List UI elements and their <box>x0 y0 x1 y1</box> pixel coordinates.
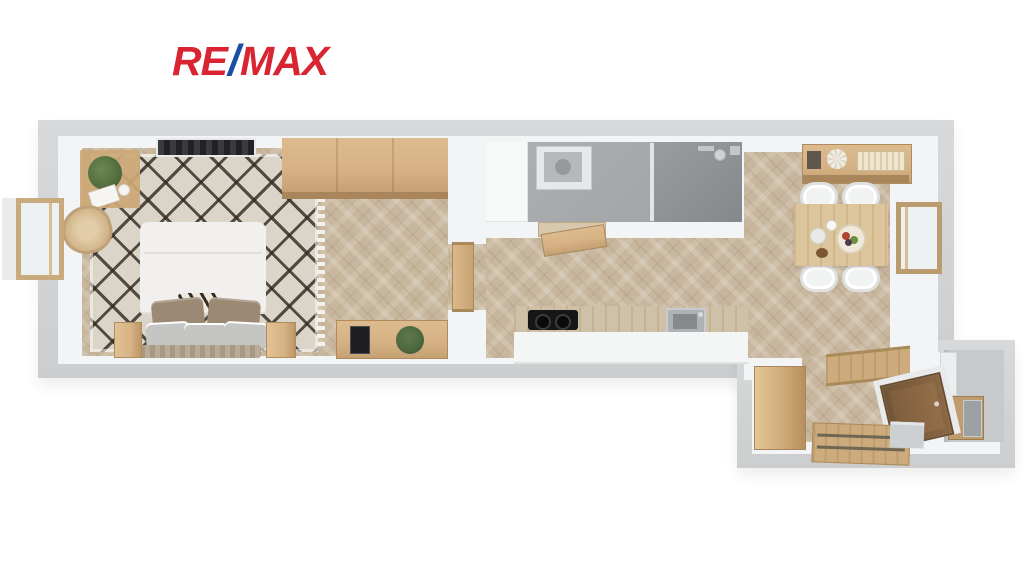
dining-chair-bottom-right <box>842 264 880 292</box>
wardrobe <box>282 138 448 194</box>
shower-glass-partition <box>650 143 654 221</box>
nightstand-left <box>114 322 142 358</box>
window-left-sash <box>49 203 52 275</box>
bathroom-cabinet-column <box>482 142 528 222</box>
sink-basin <box>673 314 697 329</box>
burner-right <box>555 314 571 330</box>
kitchen-cabinet-front <box>514 332 748 364</box>
desk-cup <box>118 184 130 196</box>
floorplan-render: RE/MAX <box>0 0 1024 576</box>
cooktop <box>528 310 578 330</box>
window-right-sash <box>905 207 908 269</box>
divider-wall-lower <box>448 310 486 364</box>
sink-faucet <box>698 312 703 317</box>
table-cup <box>826 220 837 231</box>
logo-text-max: MAX <box>240 38 328 84</box>
fruit-bowl <box>836 224 866 254</box>
logo-slash: / <box>227 37 240 85</box>
desk-plant <box>88 156 122 190</box>
dining-chair-bottom-left <box>800 264 838 292</box>
shower-floor <box>654 142 742 222</box>
window-left <box>16 198 64 280</box>
sideboard-books <box>857 151 905 171</box>
niche-cabinet-front <box>963 400 982 437</box>
hall-wardrobe <box>754 366 806 450</box>
wardrobe-shadow <box>282 192 448 199</box>
window-right <box>896 202 942 274</box>
bath-mixer <box>730 146 740 155</box>
sideboard-shell-decor <box>827 149 847 169</box>
washing-machine-door <box>544 152 582 182</box>
dining-table <box>794 204 888 266</box>
radiator-grille <box>156 138 256 157</box>
entry-step-gray <box>890 421 925 448</box>
console-plant <box>396 326 424 354</box>
logo-text-re: RE <box>172 38 227 84</box>
sideboard <box>802 144 912 184</box>
remax-logo: RE/MAX <box>172 40 328 83</box>
fruit-dark <box>845 239 852 246</box>
table-plate <box>810 228 826 244</box>
nightstand-right <box>266 322 296 358</box>
bath-faucet <box>698 146 714 151</box>
washing-machine <box>536 146 592 190</box>
divider-wall <box>448 136 486 244</box>
table-pastry <box>816 248 828 258</box>
shower-head <box>714 149 726 161</box>
washing-machine-drum <box>555 159 571 175</box>
bed-head-bench <box>135 345 261 358</box>
duvet-fold-line <box>144 252 262 254</box>
sideboard-dark-box <box>807 151 821 169</box>
burner-left <box>535 314 551 330</box>
console-speaker <box>350 326 370 354</box>
bedroom-door-open <box>452 242 474 312</box>
front-door-handle <box>934 401 940 407</box>
